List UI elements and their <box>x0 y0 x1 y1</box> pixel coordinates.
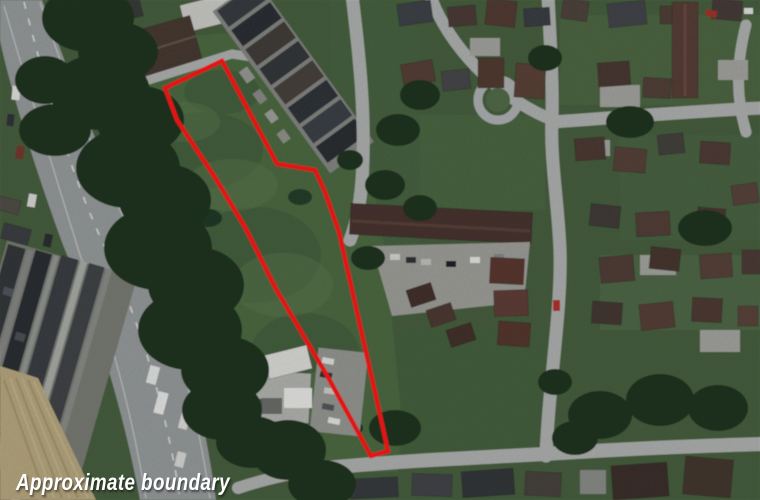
aerial-image: Approximate boundary <box>0 0 760 500</box>
caption-text: Approximate boundary <box>15 469 230 495</box>
satellite-photo: Approximate boundary <box>0 0 760 500</box>
photo-content <box>0 0 760 500</box>
